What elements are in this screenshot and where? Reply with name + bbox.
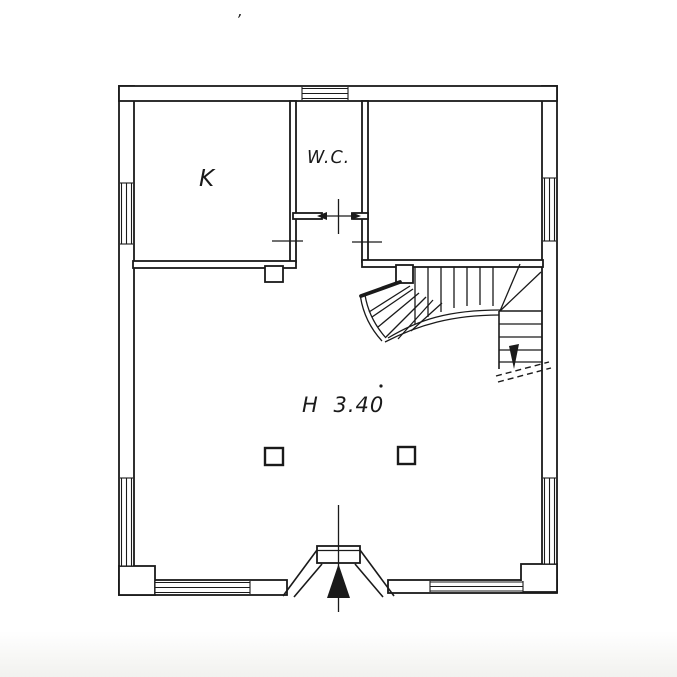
- stair-inner-curve: [385, 315, 500, 342]
- kitchen-wc-wall: [290, 101, 296, 262]
- column: [265, 448, 283, 465]
- column: [398, 447, 415, 464]
- pen-dot: [379, 384, 382, 387]
- right-room-bottom-wall: [362, 260, 543, 267]
- stair-top-step-edge: [361, 282, 400, 296]
- stair-tread: [500, 272, 541, 311]
- stair-break-line: [496, 362, 549, 376]
- window: [155, 581, 250, 594]
- ceiling-height-label: H 3.40: [302, 393, 384, 417]
- stair-inner-curve: [388, 310, 500, 338]
- stair-outer-edge: [365, 295, 386, 338]
- window: [543, 178, 556, 241]
- stair-wall-pier: [396, 265, 413, 283]
- staircase: [361, 264, 552, 382]
- entrance: [283, 505, 394, 612]
- entrance-splay-wall: [355, 564, 383, 597]
- window: [120, 183, 133, 244]
- floor-plan-drawing: K W.C. H 3.40 ’: [0, 0, 677, 677]
- window: [430, 581, 523, 592]
- wc-right-wall: [362, 101, 368, 262]
- stair-tread: [500, 264, 520, 311]
- kitchen-wall-pier: [265, 266, 283, 282]
- room-label-wc: W.C.: [307, 148, 350, 168]
- entrance-splay-wall: [294, 564, 322, 597]
- window: [120, 478, 133, 566]
- window: [543, 478, 556, 564]
- columns: [265, 447, 415, 465]
- wc-door-swing-arrow: [317, 199, 361, 234]
- window: [302, 87, 348, 100]
- bottom-right-corner-pier: [521, 564, 557, 592]
- stair-outer-edge: [361, 297, 383, 341]
- room-label-kitchen: K: [199, 166, 216, 192]
- entrance-arrow: [327, 564, 350, 598]
- stair-direction-arrow: [509, 344, 519, 369]
- bottom-left-corner-pier: [119, 566, 155, 595]
- interior-walls: [133, 101, 543, 283]
- stray-pen-mark: ’: [236, 11, 241, 29]
- floor-plan-sheet: K W.C. H 3.40 ’: [0, 0, 677, 677]
